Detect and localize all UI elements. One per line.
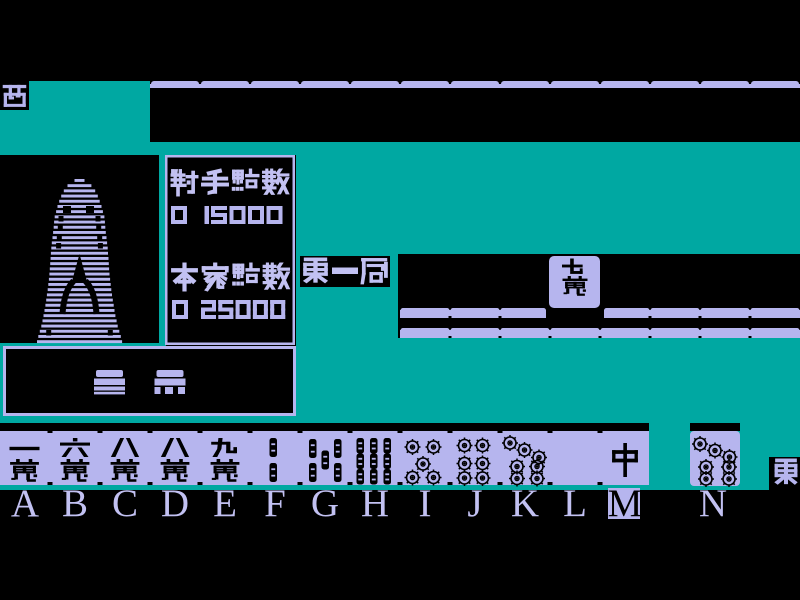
svg-text:J: J [467, 482, 482, 525]
svg-text:C: C [112, 482, 138, 525]
svg-text:K: K [511, 482, 539, 525]
svg-text:N: N [699, 482, 727, 525]
svg-text:E: E [213, 482, 237, 525]
svg-text:M: M [608, 482, 643, 525]
svg-text:F: F [264, 482, 286, 525]
svg-text:D: D [161, 482, 189, 525]
svg-text:L: L [563, 482, 587, 525]
svg-text:G: G [311, 482, 339, 525]
svg-text:H: H [361, 482, 389, 525]
svg-text:A: A [11, 482, 39, 525]
svg-text:B: B [62, 482, 88, 525]
svg-text:I: I [419, 482, 432, 525]
